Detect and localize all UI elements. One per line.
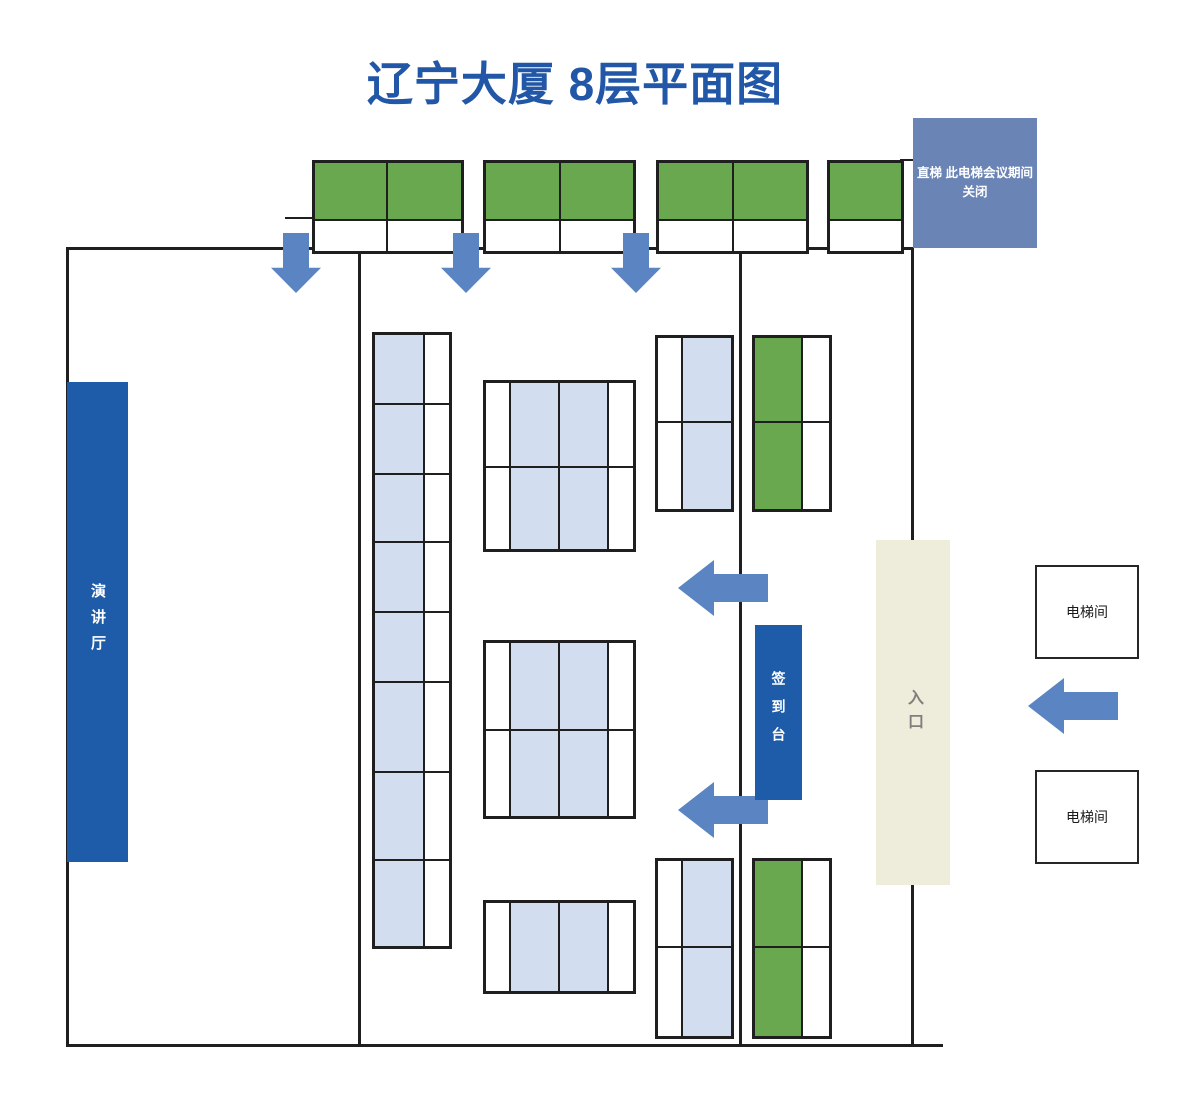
elevator-notice-line2: 关闭 xyxy=(962,183,987,202)
corridor-table-group-3-cell-r1c1 xyxy=(733,220,807,252)
center-table-3-cell-r0c0 xyxy=(485,902,510,992)
green-table-top-cell-r1c1 xyxy=(802,422,830,510)
lecture-hall-box: 演讲厅 xyxy=(67,382,128,862)
center-table-3-cell-r0c1 xyxy=(510,902,559,992)
long-table-left-cell-r4c0 xyxy=(374,612,424,682)
long-table-left-cell-r3c1 xyxy=(424,542,450,612)
right-table-bottom-cell-r0c0 xyxy=(657,860,682,947)
center-table-2-cell-r1c1 xyxy=(510,730,559,817)
elevator-room-bottom-box: 电梯间 xyxy=(1035,770,1139,864)
green-table-bottom-cell-r1c1 xyxy=(802,947,830,1037)
right-table-top-cell-r0c1 xyxy=(682,337,732,422)
center-table-2-cell-r0c2 xyxy=(559,642,608,730)
corridor-table-group-1-cell-r1c0 xyxy=(314,220,387,252)
corridor-table-group-2-cell-r1c0 xyxy=(485,220,560,252)
wall-bottom xyxy=(66,1044,943,1047)
long-table-left-cell-r6c1 xyxy=(424,772,450,860)
center-table-1-cell-r1c1 xyxy=(510,467,559,550)
green-table-bottom-cell-r0c0 xyxy=(754,860,802,947)
elevator-room-top-box: 电梯间 xyxy=(1035,565,1139,659)
long-table-left-cell-r1c0 xyxy=(374,404,424,474)
arrow-down-2 xyxy=(441,233,491,293)
corridor-table-group-1-cell-r0c0 xyxy=(314,162,387,220)
long-table-left xyxy=(372,332,452,949)
green-table-top xyxy=(752,335,832,512)
long-table-left-cell-r7c0 xyxy=(374,860,424,947)
elevator-notice-box: 直梯 此电梯会议期间 关闭 xyxy=(913,118,1037,248)
right-table-top-cell-r1c1 xyxy=(682,422,732,510)
elevator-room-bottom-label: 电梯间 xyxy=(1066,807,1108,827)
corridor-table-group-4 xyxy=(827,160,904,254)
floor-plan: 辽宁大厦 8层平面图 直梯 此电梯会议期间 关闭 演讲厅 签到台 入口 电梯间 … xyxy=(0,0,1200,1100)
center-table-1-cell-r1c2 xyxy=(559,467,608,550)
green-table-top-cell-r0c1 xyxy=(802,337,830,422)
corridor-table-group-2-cell-r0c0 xyxy=(485,162,560,220)
wall-mid-right xyxy=(739,247,742,1047)
wall-stub-left xyxy=(285,217,312,219)
lecture-hall-label: 演讲厅 xyxy=(87,583,108,661)
long-table-left-cell-r2c0 xyxy=(374,474,424,542)
center-table-1-cell-r0c3 xyxy=(608,382,634,467)
center-table-3-cell-r0c3 xyxy=(608,902,634,992)
long-table-left-cell-r0c0 xyxy=(374,334,424,404)
center-table-3-cell-r0c2 xyxy=(559,902,608,992)
corridor-table-group-3-cell-r1c0 xyxy=(658,220,733,252)
arrow-left-entrance xyxy=(1028,678,1118,734)
sign-in-desk-box: 签到台 xyxy=(755,625,802,800)
long-table-left-cell-r6c0 xyxy=(374,772,424,860)
right-table-bottom-cell-r1c0 xyxy=(657,947,682,1037)
right-table-top-cell-r1c0 xyxy=(657,422,682,510)
green-table-bottom-cell-r0c1 xyxy=(802,860,830,947)
right-table-bottom xyxy=(655,858,734,1039)
long-table-left-cell-r5c1 xyxy=(424,682,450,772)
center-table-1 xyxy=(483,380,636,552)
center-table-2-cell-r1c0 xyxy=(485,730,510,817)
green-table-bottom xyxy=(752,858,832,1039)
elevator-room-top-label: 电梯间 xyxy=(1066,602,1108,622)
long-table-left-cell-r4c1 xyxy=(424,612,450,682)
green-table-bottom-cell-r1c0 xyxy=(754,947,802,1037)
center-table-1-cell-r0c2 xyxy=(559,382,608,467)
entrance-label: 入口 xyxy=(901,689,925,737)
center-table-2-cell-r1c2 xyxy=(559,730,608,817)
corridor-table-group-4-cell-r0c0 xyxy=(829,162,902,220)
long-table-left-cell-r0c1 xyxy=(424,334,450,404)
center-table-2-cell-r0c1 xyxy=(510,642,559,730)
green-table-top-cell-r0c0 xyxy=(754,337,802,422)
corridor-table-group-2-cell-r0c1 xyxy=(560,162,634,220)
center-table-1-cell-r0c1 xyxy=(510,382,559,467)
corridor-table-group-3-cell-r0c0 xyxy=(658,162,733,220)
center-table-2-cell-r0c0 xyxy=(485,642,510,730)
sign-in-desk-label: 签到台 xyxy=(769,671,789,755)
center-table-1-cell-r1c3 xyxy=(608,467,634,550)
entrance-area: 入口 xyxy=(876,540,950,885)
wall-mid-left xyxy=(358,247,361,1047)
right-table-bottom-cell-r1c1 xyxy=(682,947,732,1037)
corridor-table-group-3 xyxy=(656,160,809,254)
green-table-top-cell-r1c0 xyxy=(754,422,802,510)
arrow-left-top xyxy=(678,560,768,616)
long-table-left-cell-r1c1 xyxy=(424,404,450,474)
center-table-2-cell-r0c3 xyxy=(608,642,634,730)
long-table-left-cell-r7c1 xyxy=(424,860,450,947)
arrow-down-3 xyxy=(611,233,661,293)
right-table-top xyxy=(655,335,734,512)
long-table-left-cell-r3c0 xyxy=(374,542,424,612)
corridor-table-group-4-cell-r1c0 xyxy=(829,220,902,252)
center-table-1-cell-r1c0 xyxy=(485,467,510,550)
right-table-bottom-cell-r0c1 xyxy=(682,860,732,947)
center-table-1-cell-r0c0 xyxy=(485,382,510,467)
long-table-left-cell-r5c0 xyxy=(374,682,424,772)
corridor-table-group-1-cell-r0c1 xyxy=(387,162,462,220)
elevator-notice-line1: 直梯 此电梯会议期间 xyxy=(917,164,1033,183)
arrow-down-1 xyxy=(271,233,321,293)
center-table-3 xyxy=(483,900,636,994)
center-table-2 xyxy=(483,640,636,819)
corridor-table-group-3-cell-r0c1 xyxy=(733,162,807,220)
center-table-2-cell-r1c3 xyxy=(608,730,634,817)
long-table-left-cell-r2c1 xyxy=(424,474,450,542)
right-table-top-cell-r0c0 xyxy=(657,337,682,422)
